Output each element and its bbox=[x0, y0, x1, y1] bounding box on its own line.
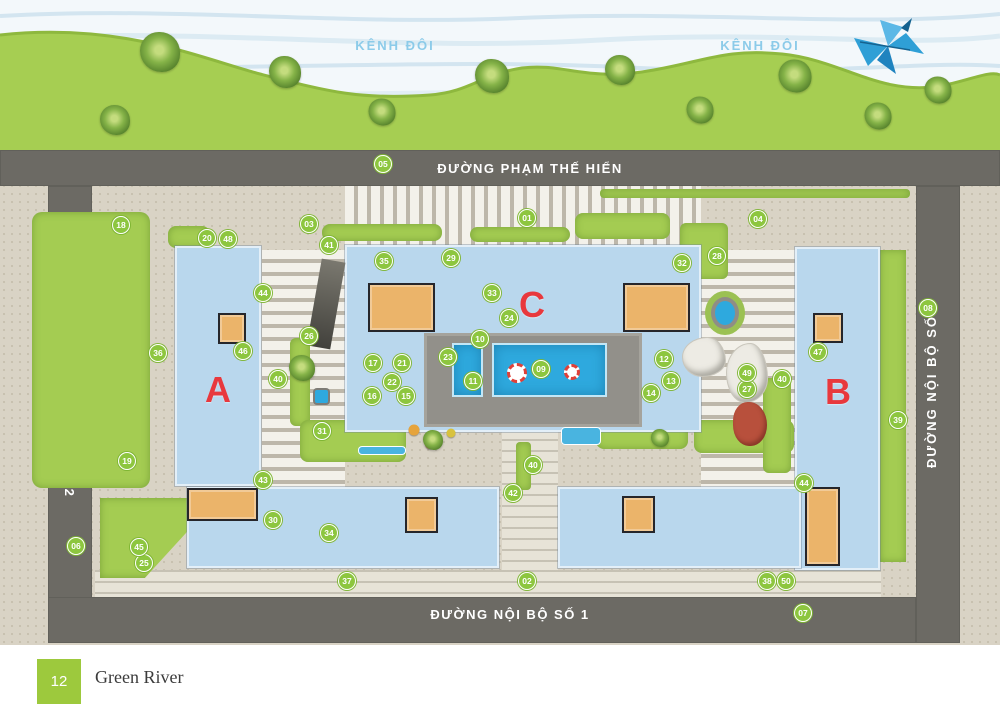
map-marker-12: 12 bbox=[655, 350, 673, 368]
map-marker-15: 15 bbox=[397, 387, 415, 405]
map-marker-21: 21 bbox=[393, 354, 411, 372]
map-marker-43: 43 bbox=[254, 471, 272, 489]
map-marker-06: 06 bbox=[67, 537, 85, 555]
map-marker-28: 28 bbox=[708, 247, 726, 265]
map-marker-17: 17 bbox=[364, 354, 382, 372]
map-marker-24: 24 bbox=[500, 309, 518, 327]
map-marker-23: 23 bbox=[439, 348, 457, 366]
map-marker-03: 03 bbox=[300, 215, 318, 233]
site-plan-map: KÊNH ĐÔI KÊNH ĐÔI ĐƯỜNG PHẠM THẾ HIỂN ĐƯ… bbox=[0, 0, 1000, 645]
map-marker-05: 05 bbox=[374, 155, 392, 173]
map-marker-26: 26 bbox=[300, 327, 318, 345]
map-marker-49: 49 bbox=[738, 364, 756, 382]
map-marker-22: 22 bbox=[383, 373, 401, 391]
map-marker-44: 44 bbox=[795, 474, 813, 492]
map-marker-19: 19 bbox=[118, 452, 136, 470]
map-marker-02: 02 bbox=[518, 572, 536, 590]
map-marker-07: 07 bbox=[794, 604, 812, 622]
map-marker-41: 41 bbox=[320, 236, 338, 254]
map-marker-18: 18 bbox=[112, 216, 130, 234]
map-marker-40: 40 bbox=[773, 370, 791, 388]
map-marker-40: 40 bbox=[269, 370, 287, 388]
map-marker-42: 42 bbox=[504, 484, 522, 502]
map-marker-48: 48 bbox=[219, 230, 237, 248]
map-marker-20: 20 bbox=[198, 229, 216, 247]
brochure-page: KÊNH ĐÔI KÊNH ĐÔI ĐƯỜNG PHẠM THẾ HIỂN ĐƯ… bbox=[0, 0, 1000, 704]
map-marker-10: 10 bbox=[471, 330, 489, 348]
project-title: Green River bbox=[95, 667, 183, 688]
map-marker-01: 01 bbox=[518, 209, 536, 227]
map-marker-13: 13 bbox=[662, 372, 680, 390]
map-marker-35: 35 bbox=[375, 252, 393, 270]
map-marker-33: 33 bbox=[483, 284, 501, 302]
map-marker-04: 04 bbox=[749, 210, 767, 228]
legend-markers: 0102030405060708091011121314151617181920… bbox=[0, 0, 1000, 645]
map-marker-45: 45 bbox=[130, 538, 148, 556]
map-marker-14: 14 bbox=[642, 384, 660, 402]
map-marker-16: 16 bbox=[363, 387, 381, 405]
map-marker-44: 44 bbox=[254, 284, 272, 302]
page-footer: 12 Green River bbox=[0, 645, 1000, 704]
map-marker-36: 36 bbox=[149, 344, 167, 362]
map-marker-30: 30 bbox=[264, 511, 282, 529]
map-marker-50: 50 bbox=[777, 572, 795, 590]
map-marker-32: 32 bbox=[673, 254, 691, 272]
map-marker-38: 38 bbox=[758, 572, 776, 590]
page-number-badge: 12 bbox=[37, 659, 81, 704]
map-marker-39: 39 bbox=[889, 411, 907, 429]
map-marker-47: 47 bbox=[809, 343, 827, 361]
map-marker-40: 40 bbox=[524, 456, 542, 474]
map-marker-34: 34 bbox=[320, 524, 338, 542]
map-marker-25: 25 bbox=[135, 554, 153, 572]
map-marker-09: 09 bbox=[532, 360, 550, 378]
map-marker-29: 29 bbox=[442, 249, 460, 267]
map-marker-27: 27 bbox=[738, 380, 756, 398]
map-marker-46: 46 bbox=[234, 342, 252, 360]
map-marker-31: 31 bbox=[313, 422, 331, 440]
map-marker-11: 11 bbox=[464, 372, 482, 390]
map-marker-08: 08 bbox=[919, 299, 937, 317]
map-marker-37: 37 bbox=[338, 572, 356, 590]
